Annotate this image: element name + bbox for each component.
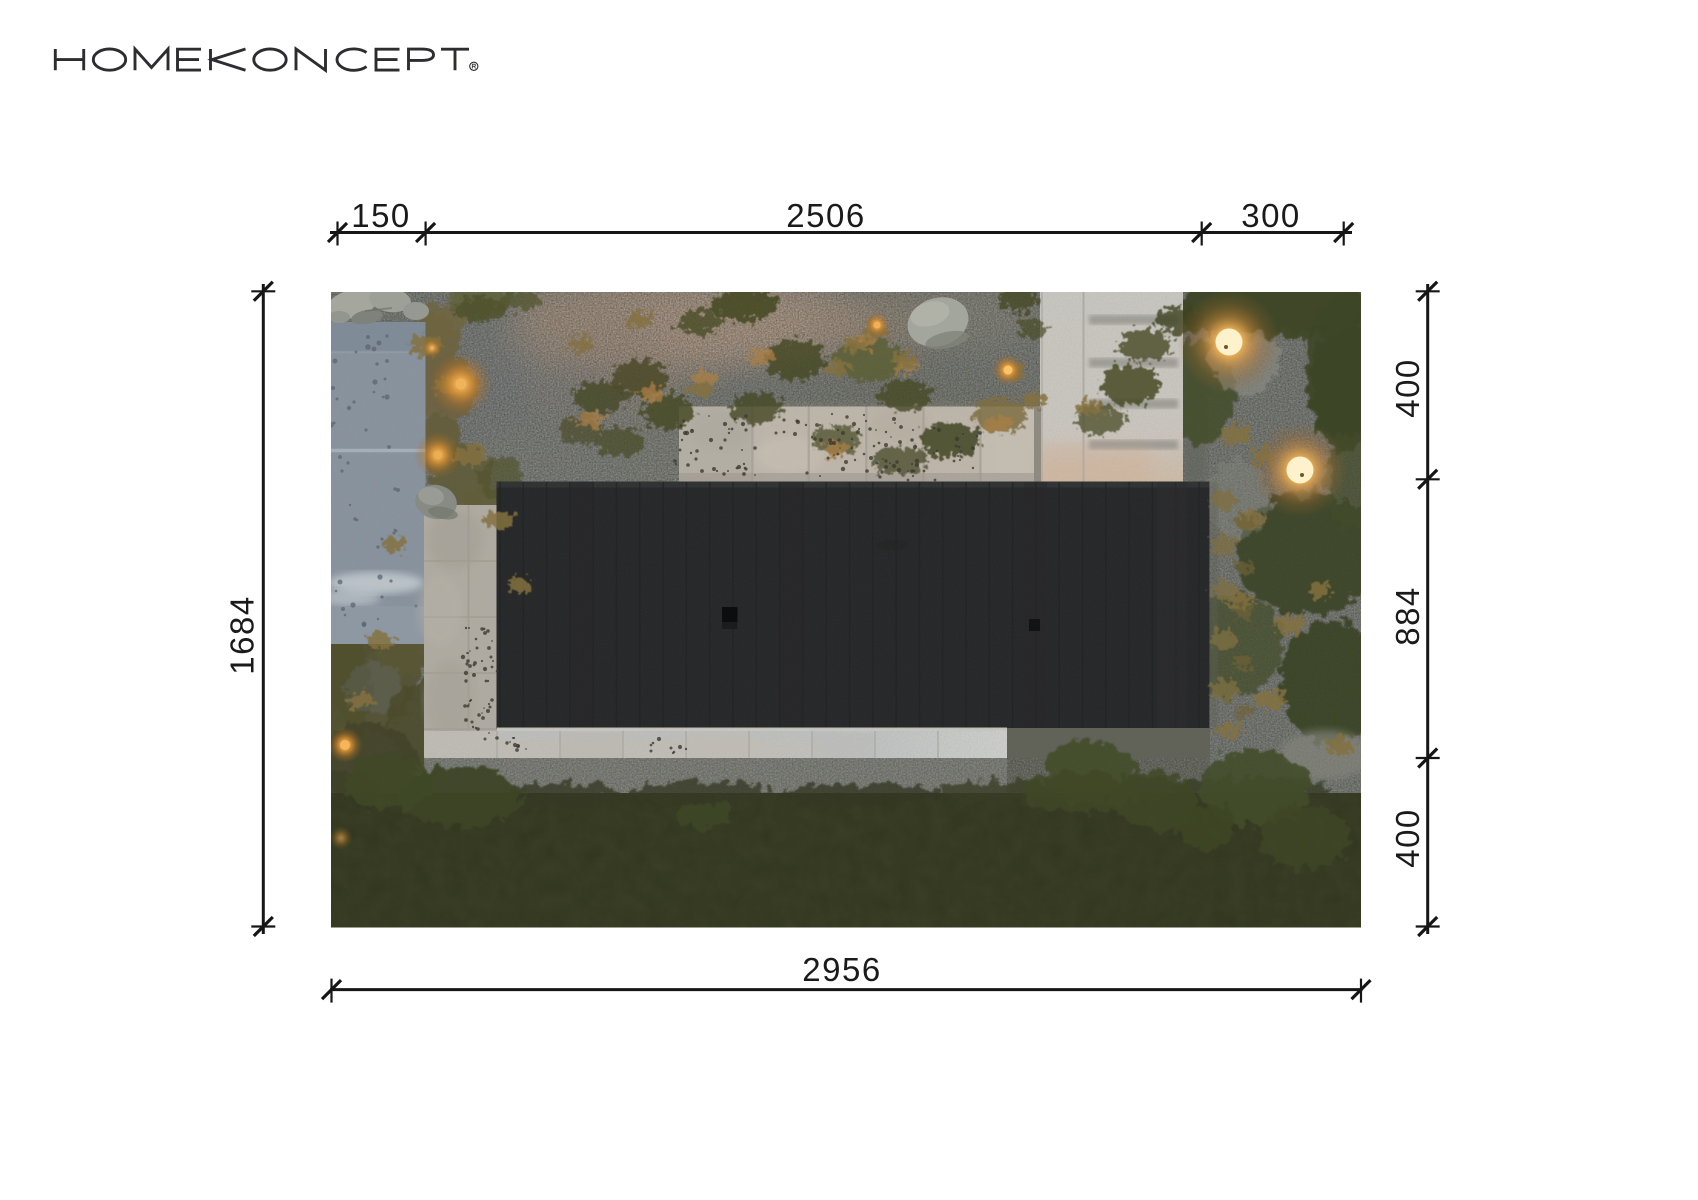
svg-text:884: 884	[1389, 586, 1426, 646]
svg-text:400: 400	[1389, 358, 1426, 418]
svg-text:1684: 1684	[224, 595, 261, 674]
svg-text:150: 150	[351, 197, 411, 234]
svg-text:2506: 2506	[786, 197, 865, 234]
svg-text:400: 400	[1389, 808, 1426, 868]
svg-text:300: 300	[1241, 197, 1301, 234]
svg-text:2956: 2956	[802, 951, 881, 988]
